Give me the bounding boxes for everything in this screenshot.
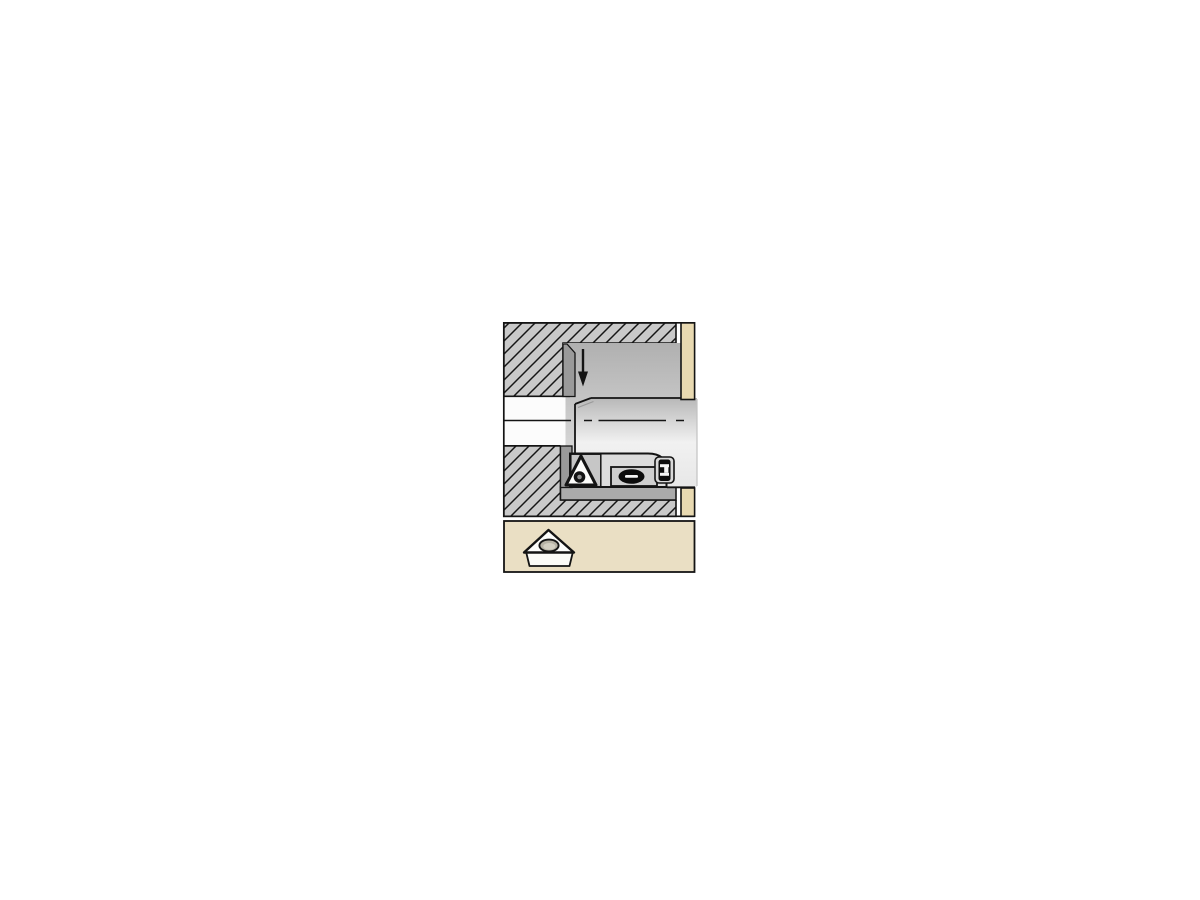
clamp-screw-slot xyxy=(625,475,638,478)
adjustment-screw-groove-top xyxy=(660,464,669,467)
adjustment-screw-groove-bottom xyxy=(660,473,669,476)
workpiece-face-top xyxy=(681,323,695,400)
bore-back-face-top xyxy=(563,344,575,397)
insert-hole-center xyxy=(577,475,582,480)
adjustment-screw-notch xyxy=(664,467,668,473)
screenshot-canvas xyxy=(0,0,1200,900)
application-diagram xyxy=(0,0,1200,900)
cartridge-assembly xyxy=(566,454,674,488)
insert-icon-hole-inner xyxy=(543,543,555,550)
counterbore-floor xyxy=(561,487,677,500)
workpiece-face-bottom xyxy=(681,488,695,516)
insert-panel xyxy=(504,521,695,572)
